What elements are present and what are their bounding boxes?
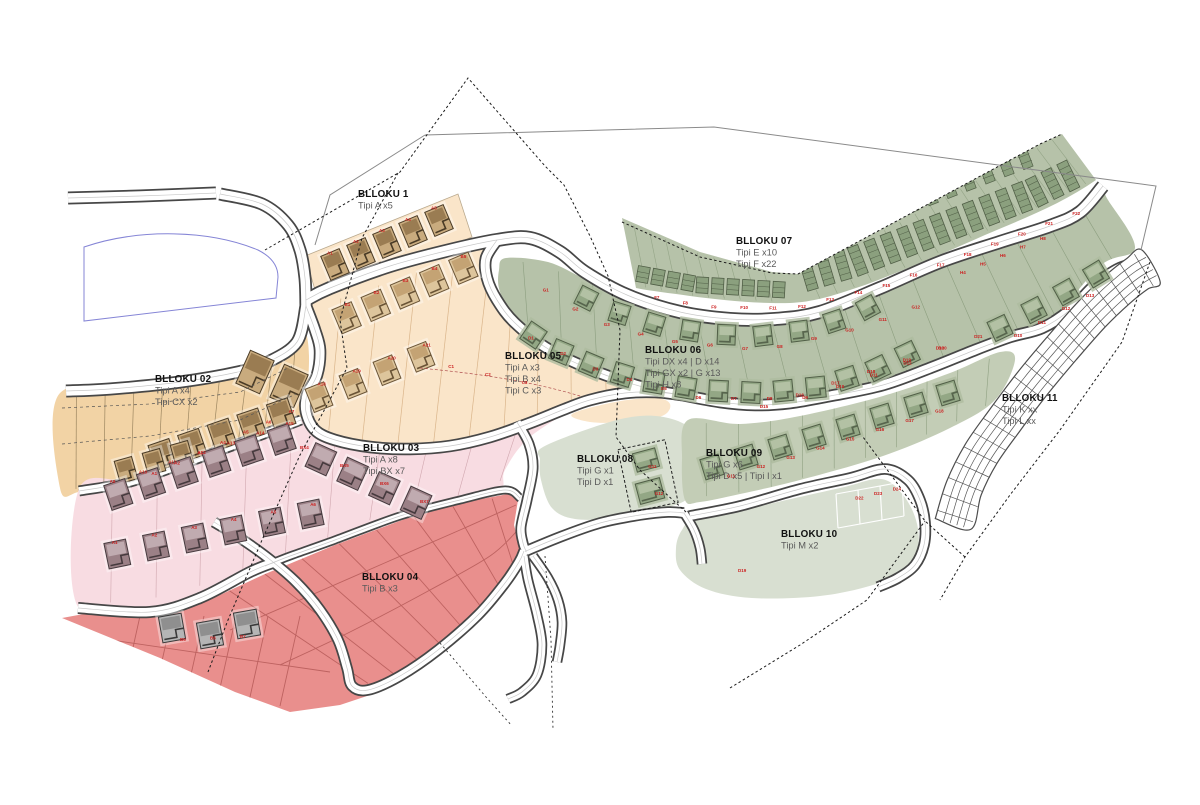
svg-text:C1: C1 [448, 364, 454, 369]
svg-text:Tipi M x2: Tipi M x2 [781, 541, 818, 551]
svg-text:D12: D12 [1062, 306, 1071, 311]
svg-text:D23: D23 [874, 491, 883, 496]
svg-text:F7: F7 [654, 295, 660, 300]
svg-text:F21: F21 [1045, 221, 1053, 226]
svg-text:Tipi GX x2 | G x13: Tipi GX x2 | G x13 [645, 368, 720, 378]
svg-text:Tipi BX x7: Tipi BX x7 [363, 466, 405, 476]
svg-text:D13: D13 [1086, 293, 1095, 298]
svg-text:A20: A20 [388, 356, 397, 361]
svg-text:F12: F12 [798, 304, 806, 309]
svg-text:C3: C3 [522, 380, 528, 385]
svg-text:G18: G18 [935, 409, 944, 414]
svg-text:A21: A21 [423, 343, 432, 348]
svg-text:D2: D2 [560, 351, 566, 356]
svg-text:G10: G10 [845, 328, 854, 333]
svg-text:Tipi A x3: Tipi A x3 [505, 363, 540, 373]
svg-text:D1: D1 [528, 336, 534, 341]
svg-text:D3: D3 [593, 366, 599, 371]
svg-text:Tipi L xx: Tipi L xx [1002, 416, 1036, 426]
svg-text:F19: F19 [991, 242, 999, 247]
svg-text:G11: G11 [648, 464, 657, 469]
svg-text:A18: A18 [318, 382, 327, 387]
svg-text:A1: A1 [327, 250, 333, 255]
svg-text:D4: D4 [627, 377, 633, 382]
svg-text:H6: H6 [1000, 253, 1006, 258]
svg-text:Tipi D x5 | Tipi I x1: Tipi D x5 | Tipi I x1 [706, 471, 782, 481]
svg-text:A13: A13 [227, 440, 236, 445]
svg-text:Tipi DX x4 | D x14: Tipi DX x4 | D x14 [645, 357, 719, 367]
svg-text:F9: F9 [711, 304, 717, 309]
svg-text:F14: F14 [855, 290, 863, 295]
svg-text:G17: G17 [905, 418, 914, 423]
svg-text:BX7: BX7 [420, 499, 429, 504]
svg-text:A14: A14 [256, 431, 265, 436]
svg-text:A10: A10 [139, 469, 148, 474]
svg-text:BLLOKU 11: BLLOKU 11 [1002, 393, 1058, 404]
svg-text:H5: H5 [980, 261, 986, 266]
svg-text:D20: D20 [938, 346, 947, 351]
svg-text:BX4: BX4 [300, 445, 309, 450]
svg-text:A6: A6 [310, 502, 316, 507]
svg-text:BX6: BX6 [380, 481, 389, 486]
svg-text:A1: A1 [112, 540, 118, 545]
svg-text:B1: B1 [345, 302, 351, 307]
svg-text:F15: F15 [883, 283, 891, 288]
svg-text:Tipi CX x2: Tipi CX x2 [155, 397, 198, 407]
svg-text:F11: F11 [769, 306, 777, 311]
svg-text:F18: F18 [964, 252, 972, 257]
svg-text:D11: D11 [1038, 320, 1047, 325]
svg-text:G14: G14 [816, 446, 825, 451]
svg-text:D6: D6 [696, 395, 702, 400]
svg-text:B5: B5 [461, 254, 467, 259]
svg-text:G9: G9 [811, 336, 818, 341]
svg-text:A4: A4 [405, 217, 411, 222]
svg-text:G6: G6 [707, 343, 714, 348]
svg-text:D10: D10 [1014, 333, 1023, 338]
svg-text:A3: A3 [379, 228, 385, 233]
svg-text:G12: G12 [757, 464, 766, 469]
svg-text:G1: G1 [543, 288, 550, 293]
svg-text:F10: F10 [740, 305, 748, 310]
svg-text:A2: A2 [152, 533, 158, 538]
svg-text:A3: A3 [191, 525, 197, 530]
svg-text:F16: F16 [910, 273, 918, 278]
svg-text:BLLOKU 02: BLLOKU 02 [155, 374, 212, 385]
svg-text:D24: D24 [893, 486, 902, 491]
svg-text:A7: A7 [289, 409, 295, 414]
svg-text:D22: D22 [855, 496, 864, 501]
svg-text:D18: D18 [867, 369, 876, 374]
svg-text:G7: G7 [742, 346, 749, 351]
svg-text:Tipi E x10: Tipi E x10 [736, 248, 777, 258]
svg-text:D7: D7 [731, 396, 737, 401]
svg-text:G5: G5 [672, 339, 679, 344]
svg-text:G11: G11 [727, 473, 736, 478]
svg-text:A6: A6 [266, 419, 272, 424]
svg-text:G8: G8 [777, 344, 784, 349]
svg-text:BLLOKU 05: BLLOKU 05 [505, 351, 562, 362]
svg-text:B4: B4 [432, 266, 438, 271]
svg-text:F13: F13 [826, 297, 834, 302]
svg-text:Tipi G x1: Tipi G x1 [577, 466, 614, 476]
svg-text:Tipi D x1: Tipi D x1 [577, 477, 613, 487]
svg-text:G4: G4 [638, 332, 645, 337]
svg-text:D21: D21 [974, 334, 983, 339]
svg-text:A12: A12 [198, 450, 207, 455]
svg-text:G3: G3 [604, 322, 611, 327]
svg-text:BLLOKU 06: BLLOKU 06 [645, 345, 702, 356]
svg-text:B7: B7 [240, 634, 246, 639]
svg-text:A4: A4 [231, 517, 237, 522]
svg-text:D19: D19 [903, 357, 912, 362]
svg-text:G12: G12 [912, 304, 921, 309]
svg-text:F8: F8 [683, 301, 689, 306]
svg-text:A19: A19 [353, 369, 362, 374]
svg-text:A11: A11 [168, 460, 177, 465]
svg-text:A15: A15 [285, 421, 294, 426]
svg-text:A4: A4 [220, 440, 226, 445]
svg-text:G12: G12 [655, 491, 664, 496]
svg-text:Tipi G x6: Tipi G x6 [706, 460, 743, 470]
svg-text:H4: H4 [960, 270, 966, 275]
svg-text:BLLOKU 03: BLLOKU 03 [363, 443, 420, 454]
svg-text:G15: G15 [846, 436, 855, 441]
svg-text:BLLOKU 09: BLLOKU 09 [706, 448, 763, 459]
svg-text:BLLOKU 08: BLLOKU 08 [577, 454, 634, 465]
svg-text:D5: D5 [661, 386, 667, 391]
svg-text:BX5: BX5 [340, 463, 349, 468]
svg-text:G16: G16 [876, 427, 885, 432]
svg-text:A1: A1 [151, 471, 157, 476]
svg-text:Tipi C x3: Tipi C x3 [505, 386, 541, 396]
svg-text:B2: B2 [374, 290, 380, 295]
svg-text:BLLOKU 1: BLLOKU 1 [358, 189, 409, 200]
svg-text:B5: B5 [180, 637, 186, 642]
svg-text:BLLOKU 10: BLLOKU 10 [781, 529, 838, 540]
svg-text:F20: F20 [1018, 231, 1026, 236]
svg-text:H8: H8 [1040, 236, 1046, 241]
svg-text:B6: B6 [210, 636, 216, 641]
svg-text:D17: D17 [831, 381, 840, 386]
svg-text:H7: H7 [1020, 245, 1026, 250]
svg-text:BLLOKU 07: BLLOKU 07 [736, 236, 793, 247]
svg-text:F22: F22 [1072, 211, 1080, 216]
svg-text:B3: B3 [403, 278, 409, 283]
svg-text:A2: A2 [353, 239, 359, 244]
svg-text:Tipi K xx: Tipi K xx [1002, 405, 1038, 415]
svg-text:A5: A5 [431, 206, 437, 211]
svg-text:Tipi A x8: Tipi A x8 [363, 455, 398, 465]
svg-text:G2: G2 [572, 307, 579, 312]
svg-text:A5: A5 [271, 510, 277, 515]
svg-text:C2: C2 [485, 372, 491, 377]
svg-text:A9: A9 [110, 479, 116, 484]
svg-text:D19: D19 [738, 568, 747, 573]
svg-text:Tipi A x5: Tipi A x5 [358, 201, 393, 211]
svg-text:G11: G11 [879, 317, 888, 322]
svg-text:D8: D8 [767, 396, 773, 401]
svg-text:Tipi B x3: Tipi B x3 [362, 584, 398, 594]
svg-text:D16: D16 [796, 392, 805, 397]
svg-text:F17: F17 [937, 262, 945, 267]
svg-text:Tipi F x22: Tipi F x22 [736, 259, 776, 269]
svg-text:A5: A5 [243, 430, 249, 435]
svg-text:D15: D15 [760, 404, 769, 409]
svg-text:BLLOKU 04: BLLOKU 04 [362, 572, 419, 583]
svg-text:Tipi A x4: Tipi A x4 [155, 386, 190, 396]
svg-text:G13: G13 [786, 455, 795, 460]
